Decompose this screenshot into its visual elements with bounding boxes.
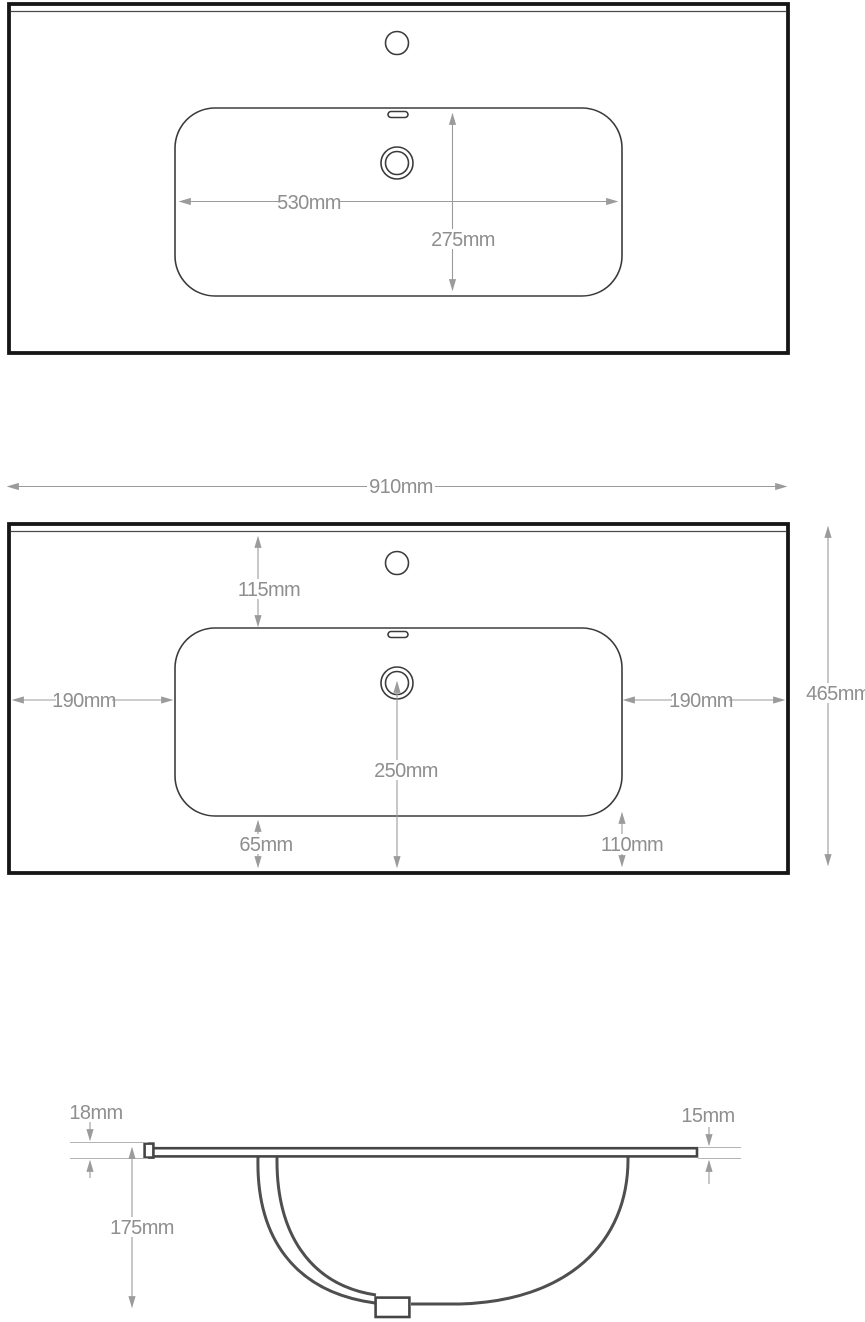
dim-basin-to-left: 190mm [13, 690, 172, 712]
bowl-outer-wall [258, 1157, 375, 1303]
dim-basin-to-right: 190mm [624, 690, 784, 712]
bowl-right-wall [411, 1157, 628, 1304]
dim-front-edge-height: 18mm [69, 1102, 122, 1178]
dim-waste-to-front: 250mm [374, 682, 438, 867]
dim-basin-to-front-right: 110mm [601, 813, 663, 866]
dim-basin-to-left-label: 190mm [52, 690, 116, 712]
waste-inner-ring [386, 152, 409, 175]
tap-hole [386, 552, 409, 575]
dim-worktop-thickness-label: 15mm [681, 1105, 734, 1127]
dim-basin-width: 530mm [180, 191, 617, 214]
dim-basin-to-front-left-label: 65mm [239, 834, 292, 856]
dim-basin-to-back: 115mm [238, 537, 300, 626]
section-view: 18mm 15mm 175mm [69, 1102, 741, 1317]
overflow-slot [388, 632, 408, 638]
bowl-inner-wall [277, 1157, 376, 1295]
dim-basin-to-front-left: 65mm [239, 821, 292, 867]
drawing-canvas: 530mm 275mm 910mm 115mm 190mm [0, 0, 865, 1322]
plan-view-basin: 530mm 275mm [9, 4, 788, 353]
dim-bowl-depth-label: 175mm [110, 1217, 174, 1239]
dim-basin-to-front-right-label: 110mm [601, 834, 663, 856]
dim-basin-to-back-label: 115mm [238, 579, 300, 601]
basin-rim [175, 628, 622, 816]
dim-worktop-thickness: 15mm [681, 1105, 734, 1184]
worktop-slab [148, 1148, 697, 1156]
front-lip [145, 1144, 154, 1158]
tap-hole [386, 32, 409, 55]
technical-drawing-page: 530mm 275mm 910mm 115mm 190mm [0, 0, 865, 1322]
dim-overall-depth: 465mm [806, 527, 865, 865]
dim-waste-to-front-label: 250mm [374, 760, 438, 782]
dim-front-edge-height-label: 18mm [69, 1102, 122, 1124]
overflow-slot [388, 112, 408, 118]
dim-overall-depth-label: 465mm [806, 683, 865, 705]
dim-overall-width: 910mm [8, 476, 786, 498]
dim-basin-depth-label: 275mm [431, 229, 495, 251]
dim-overall-width-label: 910mm [369, 476, 433, 498]
waste-fitting [376, 1298, 410, 1317]
dim-bowl-depth: 175mm [110, 1148, 174, 1307]
dim-basin-width-label: 530mm [277, 192, 341, 214]
plan-view-worktop: 115mm 190mm 190mm 250mm 65mm 110mm [9, 524, 865, 873]
dim-basin-to-right-label: 190mm [669, 690, 733, 712]
